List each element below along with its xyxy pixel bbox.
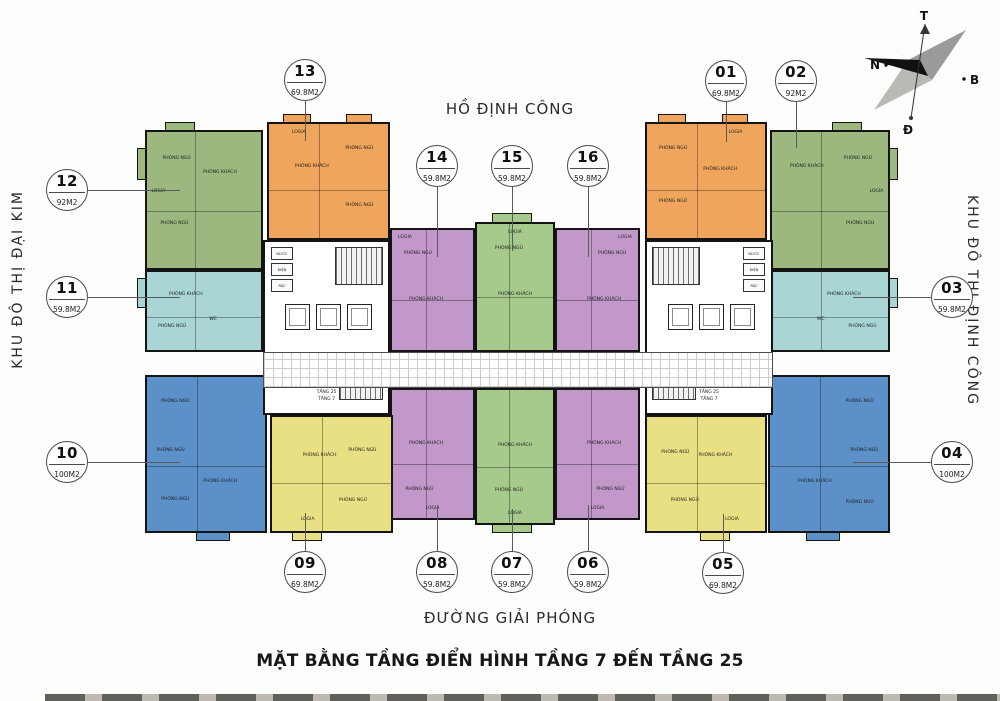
- unit-number: 03: [932, 279, 972, 297]
- unit-block-01: PHÒNG NGỦPHÒNG NGỦPHÒNG KHÁCHLOGIA: [645, 122, 767, 240]
- room-label: PHÒNG NGỦ: [846, 399, 874, 404]
- callout-leader-line: [588, 187, 589, 257]
- room-label: LOGIA: [870, 190, 884, 195]
- unit-block-06: PHÒNG KHÁCHPHÒNG NGỦLOGIA: [555, 388, 640, 520]
- room-label: PHÒNG KHÁCH: [409, 297, 443, 302]
- unit-block-12: PHÒNG NGỦPHÒNG KHÁCHPHÒNG NGỦLOGIA: [145, 130, 263, 270]
- callout-divider: [49, 299, 85, 300]
- unit-number: 04: [932, 444, 972, 462]
- room-label: PHÒNG NGỦ: [846, 222, 874, 227]
- shaft-0: NƯỚC: [271, 247, 293, 260]
- room-label: LOGIA: [508, 231, 522, 236]
- elevator-icon: [668, 304, 693, 330]
- unit-area: 69.8M2: [285, 580, 325, 589]
- room-label: PHÒNG NGỦ: [598, 252, 626, 257]
- unit-block-14: PHÒNG NGỦPHÒNG KHÁCHLOGIA: [390, 228, 475, 352]
- unit-number: 09: [285, 554, 325, 572]
- unit-callout-07: 0759.8M2: [491, 551, 533, 593]
- room-label: PHÒNG KHÁCH: [409, 442, 443, 447]
- callout-leader-line: [588, 505, 589, 551]
- unit-callout-02: 0292M2: [775, 60, 817, 102]
- core-right: NƯỚCĐIỆNRÁCTẦNG 25TẦNG 7: [645, 240, 773, 415]
- callout-leader-line: [853, 297, 931, 298]
- callout-divider: [419, 574, 455, 575]
- unit-block-03: PHÒNG KHÁCHPHÒNG NGỦWC: [770, 270, 890, 352]
- unit-number: 15: [492, 148, 532, 166]
- callout-leader-line: [512, 187, 513, 251]
- stairs-icon: [652, 247, 700, 285]
- room-label: PHÒNG KHÁCH: [203, 479, 237, 484]
- unit-block-08: PHÒNG KHÁCHPHÒNG NGỦLOGIA: [390, 388, 475, 520]
- room-label: PHÒNG KHÁCH: [498, 292, 532, 297]
- unit-block-05: PHÒNG KHÁCHPHÒNG NGỦPHÒNG NGỦLOGIA: [645, 415, 767, 533]
- unit-area: 59.8M2: [417, 174, 457, 183]
- unit-number: 14: [417, 148, 457, 166]
- room-label: LOGIA: [301, 517, 315, 522]
- room-label: PHÒNG NGỦ: [160, 222, 188, 227]
- callout-divider: [49, 192, 85, 193]
- unit-area: 59.8M2: [568, 580, 608, 589]
- unit-callout-03: 0359.8M2: [931, 276, 973, 318]
- shaft-0: NƯỚC: [743, 247, 765, 260]
- room-label: LOGIA: [618, 236, 632, 241]
- unit-area: 59.8M2: [568, 174, 608, 183]
- unit-number: 07: [492, 554, 532, 572]
- room-label: LOGIA: [292, 131, 306, 136]
- callout-leader-line: [437, 505, 438, 551]
- callout-leader-line: [726, 102, 727, 142]
- unit-callout-13: 1369.8M2: [284, 59, 326, 101]
- unit-block-02: PHÒNG KHÁCHPHÒNG NGỦPHÒNG NGỦLOGIA: [770, 130, 890, 270]
- room-label: PHÒNG KHÁCH: [587, 297, 621, 302]
- balcony: [889, 148, 898, 180]
- callout-divider: [778, 83, 814, 84]
- core-left: NƯỚCĐIỆNRÁCTẦNG 25TẦNG 7: [263, 240, 390, 415]
- room-label: PHÒNG NGỦ: [345, 204, 373, 209]
- room-label: PHÒNG NGỦ: [161, 399, 189, 404]
- unit-callout-14: 1459.8M2: [416, 145, 458, 187]
- level-note: TẦNG 7: [647, 397, 771, 404]
- unit-number: 05: [703, 555, 743, 573]
- unit-callout-04: 04100M2: [931, 441, 973, 483]
- level-note: TẦNG 7: [265, 397, 388, 404]
- unit-number: 10: [47, 444, 87, 462]
- balcony: [700, 532, 730, 541]
- room-label: PHÒNG KHÁCH: [790, 165, 824, 170]
- callout-leader-line: [796, 102, 797, 148]
- callout-divider: [49, 464, 85, 465]
- callout-divider: [570, 168, 606, 169]
- unit-area: 92M2: [776, 89, 816, 98]
- unit-area: 100M2: [47, 470, 87, 479]
- callout-divider: [494, 168, 530, 169]
- unit-callout-16: 1659.8M2: [567, 145, 609, 187]
- room-label: PHÒNG NGỦ: [405, 488, 433, 493]
- room-label: PHÒNG NGỦ: [161, 498, 189, 503]
- callout-leader-line: [88, 190, 180, 191]
- balcony: [806, 532, 840, 541]
- room-label: PHÒNG NGỦ: [846, 501, 874, 506]
- callout-divider: [934, 299, 970, 300]
- unit-area: 69.8M2: [703, 581, 743, 590]
- room-label: PHÒNG KHÁCH: [295, 165, 329, 170]
- room-label: LOGIA: [729, 131, 743, 136]
- unit-callout-06: 0659.8M2: [567, 551, 609, 593]
- compass-letter-top: T: [920, 9, 929, 23]
- unit-number: 06: [568, 554, 608, 572]
- callout-divider: [419, 168, 455, 169]
- room-label: LOGIA: [591, 507, 605, 512]
- unit-block-13: PHÒNG NGỦPHÒNG KHÁCHPHÒNG NGỦLOGIA: [267, 122, 390, 240]
- shaft-1: ĐIỆN: [271, 263, 293, 276]
- callout-divider: [494, 574, 530, 575]
- room-label: PHÒNG KHÁCH: [203, 171, 237, 176]
- unit-number: 02: [776, 63, 816, 81]
- unit-block-09: PHÒNG KHÁCHPHÒNG NGỦPHÒNG NGỦLOGIA: [270, 415, 393, 533]
- callout-divider: [287, 574, 323, 575]
- unit-number: 08: [417, 554, 457, 572]
- room-label: PHÒNG NGỦ: [404, 252, 432, 257]
- unit-callout-09: 0969.8M2: [284, 551, 326, 593]
- unit-number: 11: [47, 279, 87, 297]
- room-label: PHÒNG NGỦ: [848, 324, 876, 329]
- unit-number: 13: [285, 62, 325, 80]
- room-label: PHÒNG NGỦ: [158, 324, 186, 329]
- unit-block-10: PHÒNG NGỦPHÒNG NGỦPHÒNG NGỦPHÒNG KHÁCH: [145, 375, 267, 533]
- unit-area: 59.8M2: [492, 174, 532, 183]
- floor-plan-page: HỒ ĐỊNH CÔNG ĐƯỜNG GIẢI PHÓNG KHU ĐÔ THỊ…: [0, 0, 1000, 701]
- room-label: WC: [817, 318, 825, 323]
- level-note: TẦNG 25: [265, 390, 388, 397]
- room-label: PHÒNG NGỦ: [339, 499, 367, 504]
- unit-block-04: PHÒNG NGỦPHÒNG NGỦPHÒNG NGỦPHÒNG KHÁCH: [768, 375, 890, 533]
- room-label: PHÒNG NGỦ: [844, 157, 872, 162]
- unit-callout-15: 1559.8M2: [491, 145, 533, 187]
- unit-block-16: PHÒNG NGỦPHÒNG KHÁCHLOGIA: [555, 228, 640, 352]
- unit-area: 59.8M2: [417, 580, 457, 589]
- unit-block-11: PHÒNG KHÁCHPHÒNG NGỦWC: [145, 270, 263, 352]
- room-label: PHÒNG NGỦ: [157, 449, 185, 454]
- unit-block-07: PHÒNG KHÁCHPHÒNG NGỦLOGIA: [475, 388, 555, 525]
- room-label: PHÒNG KHÁCH: [303, 454, 337, 459]
- unit-area: 59.8M2: [47, 305, 87, 314]
- shaft-2: RÁC: [743, 279, 765, 292]
- room-label: LOGIA: [725, 517, 739, 522]
- unit-area: 92M2: [47, 198, 87, 207]
- room-label: PHÒNG NGỦ: [671, 499, 699, 504]
- unit-callout-12: 1292M2: [46, 169, 88, 211]
- callout-leader-line: [305, 101, 306, 141]
- elevator-icon: [347, 304, 372, 330]
- unit-block-15: PHÒNG NGỦPHÒNG KHÁCHLOGIA: [475, 222, 555, 352]
- room-label: PHÒNG NGỦ: [163, 157, 191, 162]
- unit-callout-01: 0169.8M2: [705, 60, 747, 102]
- compass-letter-left: N: [870, 58, 880, 72]
- level-note: TẦNG 25: [647, 390, 771, 397]
- room-label: PHÒNG KHÁCH: [587, 442, 621, 447]
- callout-divider: [287, 82, 323, 83]
- corridor: [263, 352, 773, 388]
- room-label: PHÒNG KHÁCH: [798, 479, 832, 484]
- room-label: PHÒNG NGỦ: [659, 147, 687, 152]
- unit-callout-05: 0569.8M2: [702, 552, 744, 594]
- callout-divider: [708, 83, 744, 84]
- unit-area: 59.8M2: [492, 580, 532, 589]
- room-label: PHÒNG NGỦ: [495, 247, 523, 252]
- room-label: PHÒNG NGỦ: [596, 488, 624, 493]
- compass-letter-bottom: Đ: [903, 123, 913, 137]
- balcony: [196, 532, 230, 541]
- unit-number: 12: [47, 172, 87, 190]
- callout-leader-line: [305, 513, 306, 551]
- callout-leader-line: [723, 514, 724, 552]
- callout-leader-line: [512, 509, 513, 551]
- unit-area: 59.8M2: [932, 305, 972, 314]
- room-label: WC: [209, 318, 217, 323]
- room-label: PHÒNG NGỦ: [495, 489, 523, 494]
- callout-leader-line: [88, 297, 180, 298]
- room-label: PHÒNG NGỦ: [348, 449, 376, 454]
- balcony: [292, 532, 322, 541]
- callout-divider: [570, 574, 606, 575]
- shaft-2: RÁC: [271, 279, 293, 292]
- room-label: PHÒNG NGỦ: [661, 451, 689, 456]
- room-label: PHÒNG NGỦ: [659, 199, 687, 204]
- callout-leader-line: [88, 462, 180, 463]
- elevator-icon: [699, 304, 724, 330]
- room-label: PHÒNG NGỦ: [850, 449, 878, 454]
- room-label: PHÒNG KHÁCH: [703, 167, 737, 172]
- unit-callout-08: 0859.8M2: [416, 551, 458, 593]
- room-label: LOGIA: [398, 236, 412, 241]
- unit-number: 01: [706, 63, 746, 81]
- callout-leader-line: [437, 187, 438, 257]
- callout-divider: [705, 575, 741, 576]
- room-label: PHÒNG KHÁCH: [498, 444, 532, 449]
- room-label: PHÒNG KHÁCH: [699, 454, 733, 459]
- callout-leader-line: [853, 462, 931, 463]
- shaft-1: ĐIỆN: [743, 263, 765, 276]
- unit-number: 16: [568, 148, 608, 166]
- elevator-icon: [285, 304, 310, 330]
- room-label: LOGIA: [508, 511, 522, 516]
- unit-area: 69.8M2: [285, 88, 325, 97]
- elevator-icon: [316, 304, 341, 330]
- room-label: PHÒNG NGỦ: [345, 147, 373, 152]
- level-notes: TẦNG 25TẦNG 7: [647, 390, 771, 404]
- unit-area: 100M2: [932, 470, 972, 479]
- compass-letter-right: B: [970, 73, 979, 87]
- level-notes: TẦNG 25TẦNG 7: [265, 390, 388, 404]
- unit-area: 69.8M2: [706, 89, 746, 98]
- callout-divider: [934, 464, 970, 465]
- compass-rose-icon: T N B Đ: [848, 8, 998, 138]
- unit-callout-10: 10100M2: [46, 441, 88, 483]
- stairs-icon: [335, 247, 383, 285]
- balcony: [889, 278, 898, 308]
- elevator-icon: [730, 304, 755, 330]
- unit-callout-11: 1159.8M2: [46, 276, 88, 318]
